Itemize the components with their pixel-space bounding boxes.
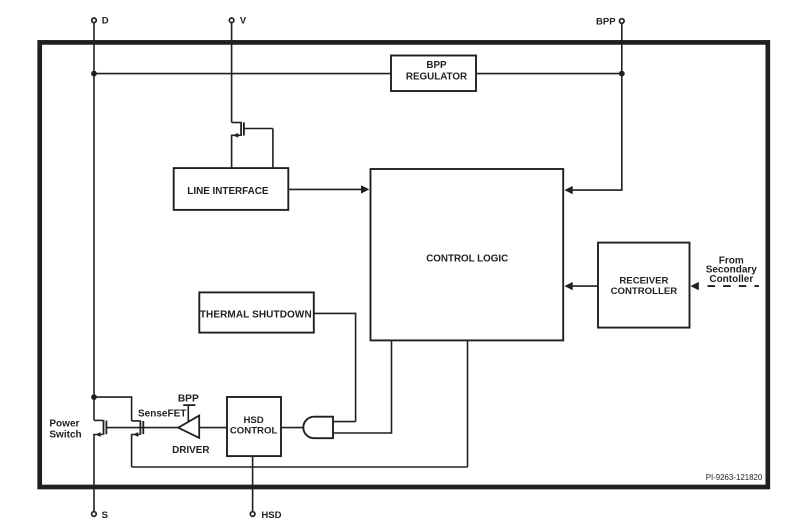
svg-text:Contoller: Contoller	[709, 274, 753, 285]
svg-text:BPP: BPP	[596, 16, 616, 27]
svg-text:V: V	[240, 15, 247, 26]
svg-text:RECEIVER: RECEIVER	[619, 275, 668, 286]
svg-text:HSD: HSD	[261, 510, 281, 521]
svg-text:Switch: Switch	[49, 430, 81, 441]
svg-text:CONTROLLER: CONTROLLER	[611, 286, 678, 297]
svg-text:HSD: HSD	[243, 415, 263, 426]
svg-text:SenseFET: SenseFET	[138, 409, 186, 420]
svg-text:D: D	[102, 15, 109, 26]
svg-text:REGULATOR: REGULATOR	[406, 72, 467, 83]
svg-text:BPP: BPP	[426, 60, 447, 71]
svg-text:DRIVER: DRIVER	[172, 445, 209, 456]
svg-text:THERMAL SHUTDOWN: THERMAL SHUTDOWN	[200, 310, 312, 321]
svg-text:S: S	[102, 510, 108, 521]
svg-text:BPP: BPP	[178, 394, 199, 405]
svg-text:PI-9263-121820: PI-9263-121820	[706, 473, 763, 482]
svg-text:CONTROL LOGIC: CONTROL LOGIC	[426, 253, 508, 264]
svg-text:CONTROL: CONTROL	[230, 426, 278, 437]
svg-text:Power: Power	[49, 418, 79, 429]
svg-text:LINE INTERFACE: LINE INTERFACE	[187, 186, 269, 197]
